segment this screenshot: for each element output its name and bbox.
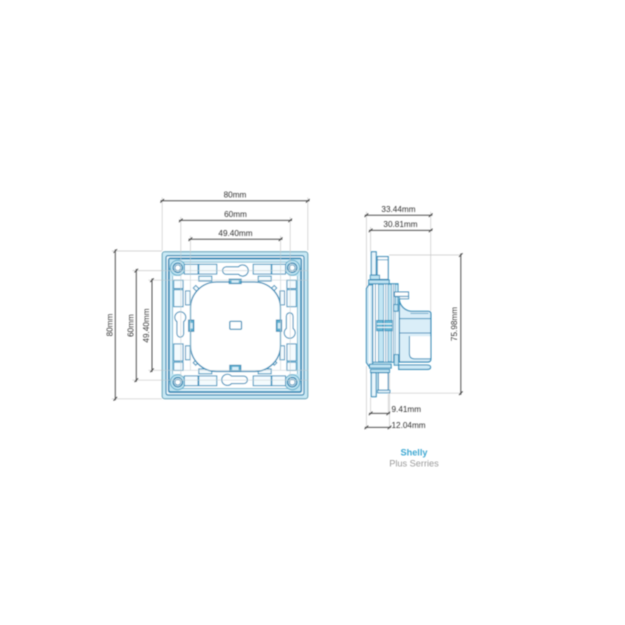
svg-text:Plus Serries: Plus Serries xyxy=(389,459,439,469)
svg-text:60mm: 60mm xyxy=(224,210,247,219)
svg-text:9.41mm: 9.41mm xyxy=(392,405,422,414)
svg-text:49.40mm: 49.40mm xyxy=(142,308,151,342)
svg-text:60mm: 60mm xyxy=(126,314,135,337)
svg-text:Shelly: Shelly xyxy=(400,448,428,458)
svg-text:75.98mm: 75.98mm xyxy=(450,307,459,341)
svg-text:30.81mm: 30.81mm xyxy=(383,220,417,229)
svg-text:80mm: 80mm xyxy=(224,191,247,200)
svg-text:80mm: 80mm xyxy=(105,313,114,336)
svg-text:49.40mm: 49.40mm xyxy=(218,229,252,238)
svg-text:33.44mm: 33.44mm xyxy=(381,205,415,214)
svg-text:12.04mm: 12.04mm xyxy=(392,421,426,430)
